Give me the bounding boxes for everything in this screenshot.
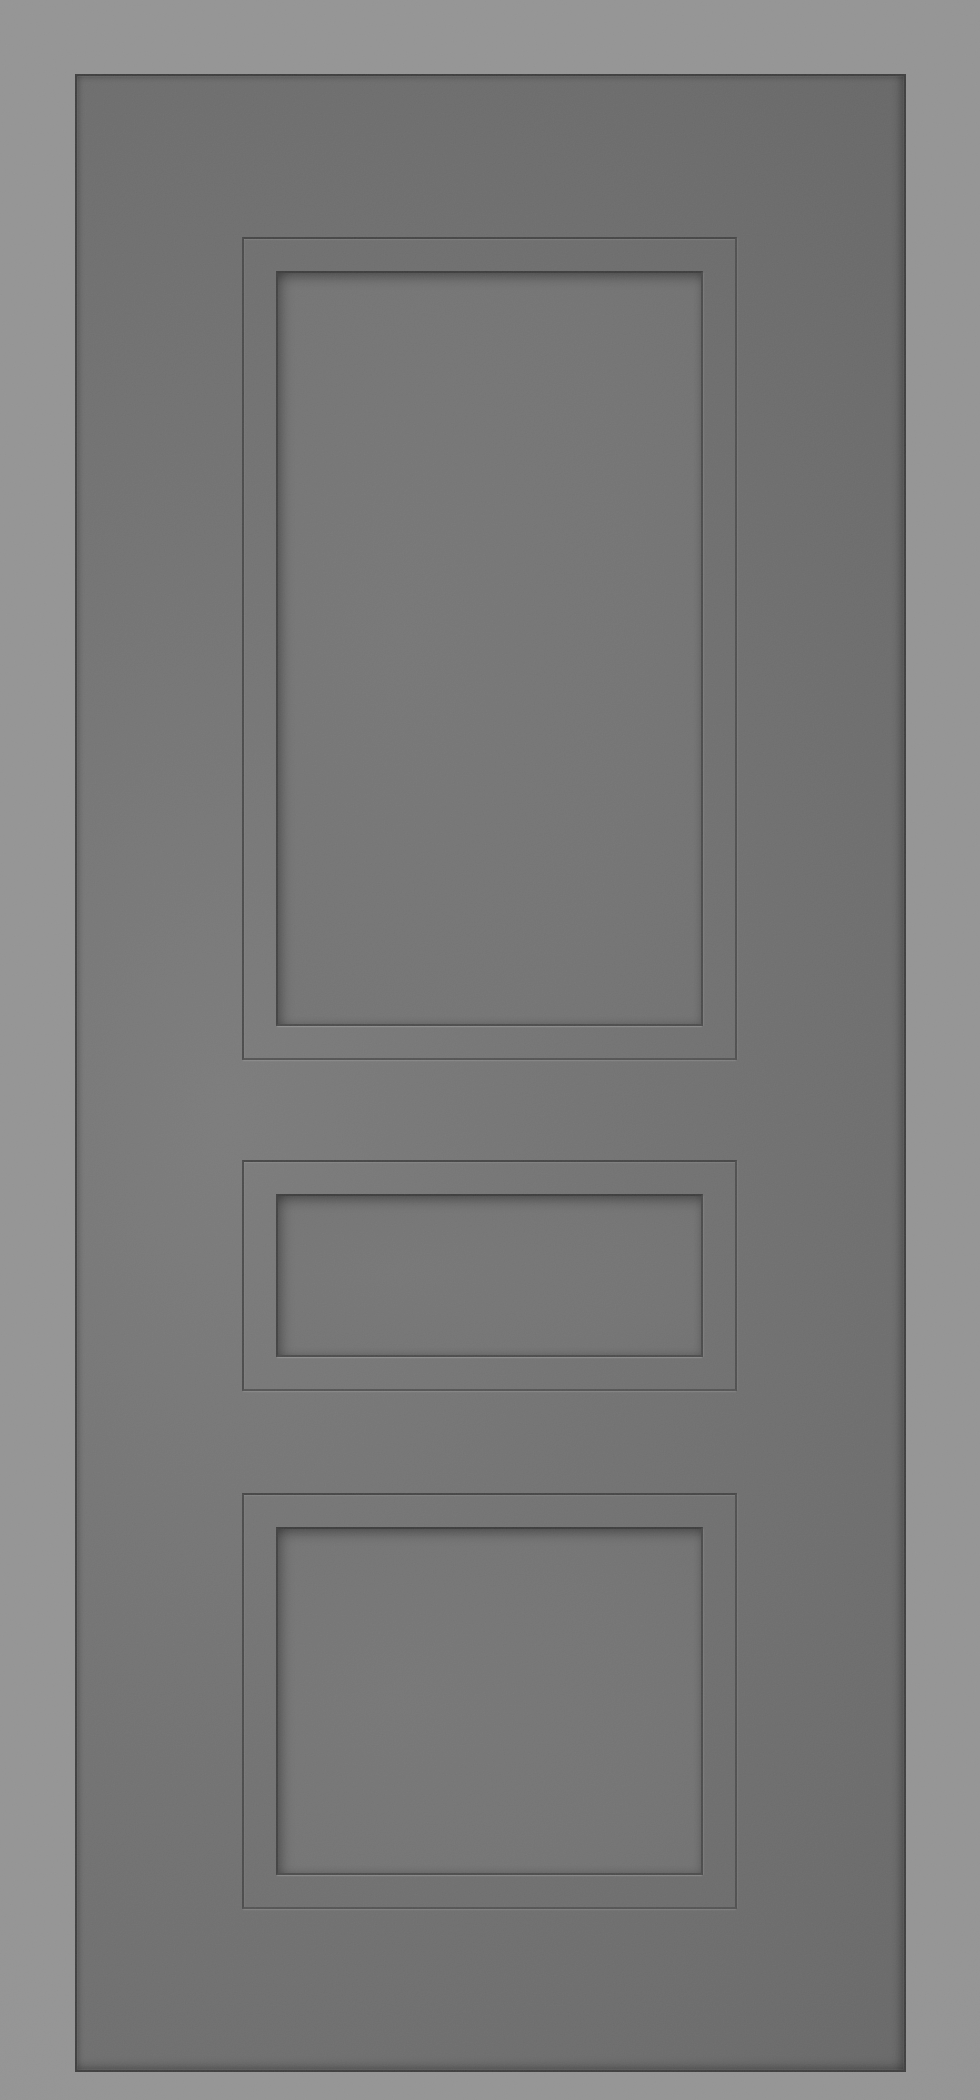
door-panel-bottom-recessed-field: [276, 1527, 703, 1875]
door-panel-top: [242, 237, 737, 1060]
door-panel-top-recessed-field: [276, 271, 703, 1026]
door-panel-bottom: [242, 1493, 737, 1909]
backdrop-wall: [0, 0, 980, 2100]
door-panel-middle: [242, 1160, 737, 1391]
door-slab: [75, 74, 906, 2072]
door-panel-middle-recessed-field: [276, 1194, 703, 1357]
